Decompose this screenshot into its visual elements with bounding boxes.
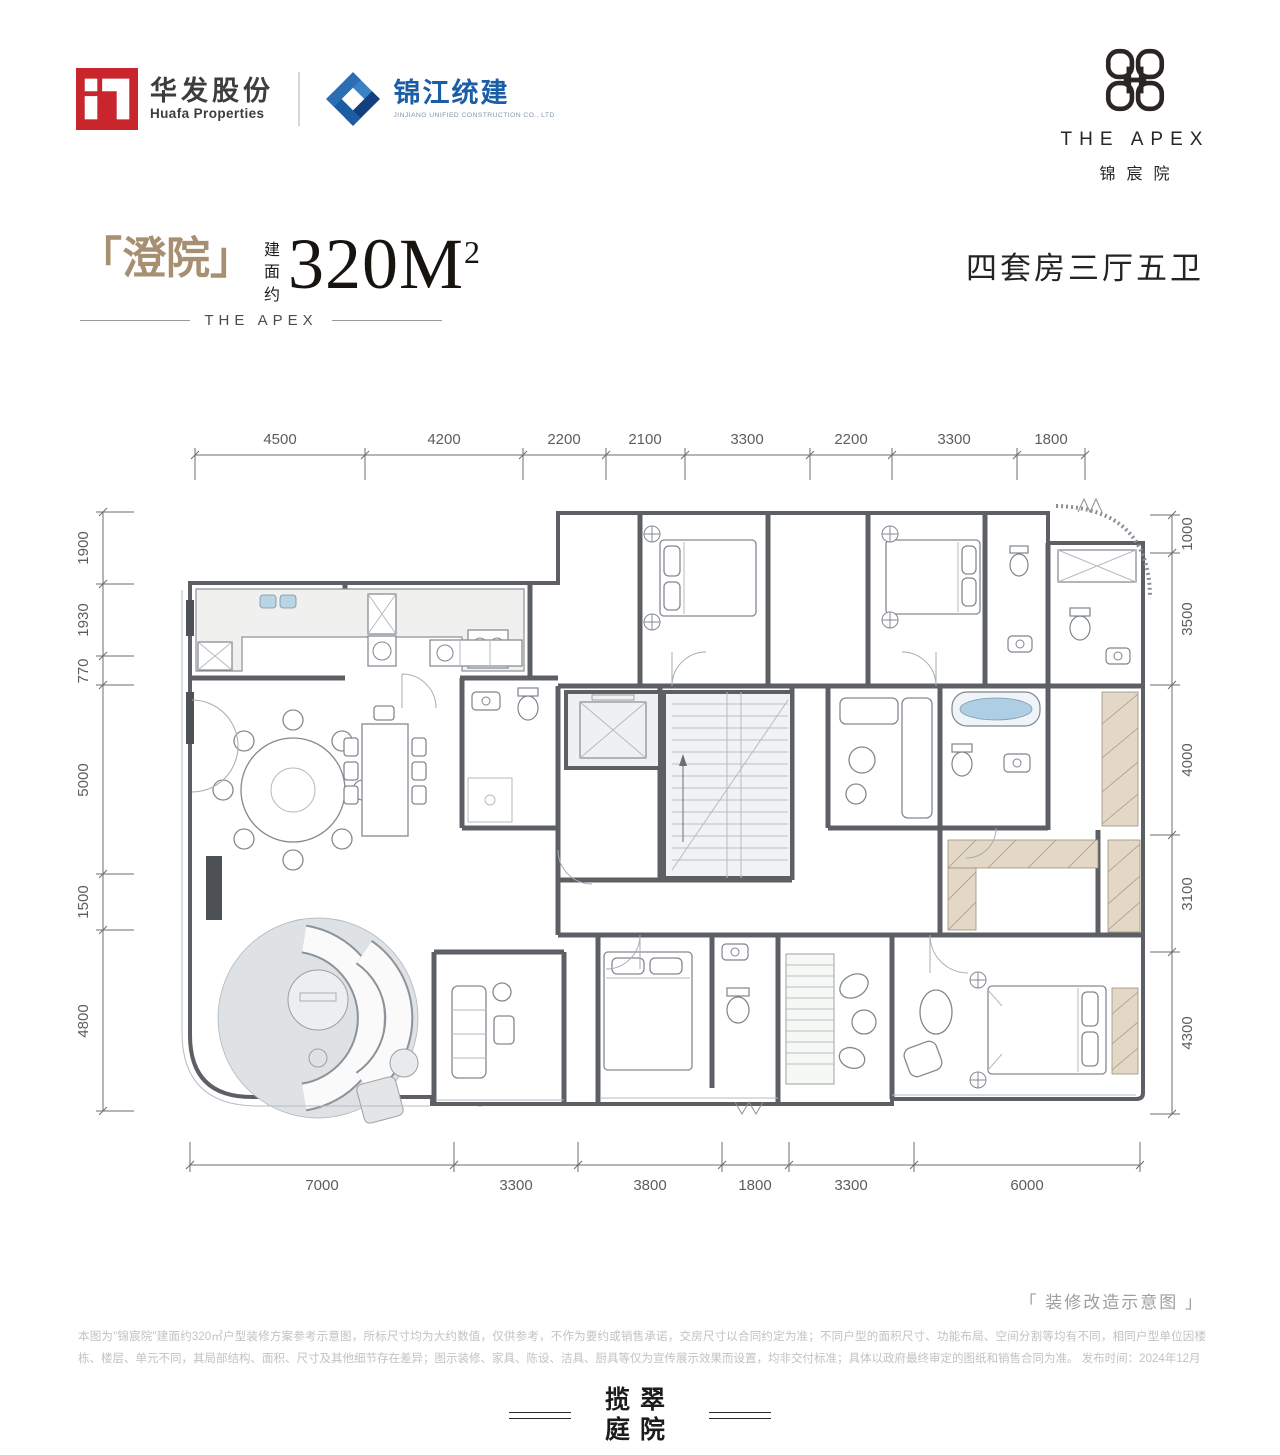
floor-plan: 4500 4200 2200 2100 3300 2200 3300 1800 … — [0, 0, 1280, 1455]
svg-text:4300: 4300 — [1179, 1016, 1196, 1049]
svg-text:3300: 3300 — [834, 1177, 867, 1194]
svg-text:3100: 3100 — [1179, 877, 1196, 910]
svg-text:3500: 3500 — [1179, 602, 1196, 635]
footer-logo-line2: 庭院 — [605, 1416, 675, 1446]
kitchen-sink-icon — [260, 595, 276, 608]
dimension-bottom: 7000 3300 3800 1800 3300 6000 — [186, 1142, 1144, 1194]
svg-text:2200: 2200 — [547, 431, 580, 448]
footer-logo-line1: 揽翠 — [605, 1386, 675, 1416]
footer-divider-line — [709, 1412, 771, 1419]
footer-divider-line — [509, 1412, 571, 1419]
svg-text:1000: 1000 — [1179, 517, 1196, 550]
svg-text:6000: 6000 — [1010, 1177, 1043, 1194]
toilet-icon — [727, 997, 749, 1023]
footer-logo-text: 揽翠 庭院 — [605, 1386, 675, 1445]
svg-text:7000: 7000 — [305, 1177, 338, 1194]
svg-text:4800: 4800 — [75, 1004, 92, 1037]
floorplan-poster: 华发股份 Huafa Properties 锦江统建 JINJIANG UNIF… — [0, 0, 1280, 1455]
long-table — [362, 724, 408, 836]
svg-text:5000: 5000 — [75, 763, 92, 796]
round-coffee-table — [288, 970, 348, 1030]
svg-text:1500: 1500 — [75, 885, 92, 918]
svg-text:2100: 2100 — [628, 431, 661, 448]
disclaimer-text: 本图为"锦宸院"建面约320㎡户型装修方案参考示意图，所标尺寸均为大约数值，仅供… — [78, 1326, 1206, 1371]
svg-text:3800: 3800 — [633, 1177, 666, 1194]
sofa — [902, 698, 932, 818]
svg-text:4500: 4500 — [263, 431, 296, 448]
garden-stairs — [786, 954, 834, 1084]
washer-icon — [368, 636, 396, 666]
daybed — [452, 986, 486, 1078]
svg-text:3300: 3300 — [937, 431, 970, 448]
svg-text:1930: 1930 — [75, 603, 92, 636]
toilet-icon — [518, 696, 538, 720]
svg-text:3300: 3300 — [730, 431, 763, 448]
toilet-icon — [952, 752, 972, 776]
svg-text:770: 770 — [75, 658, 92, 683]
svg-text:1800: 1800 — [738, 1177, 771, 1194]
pouf — [920, 990, 952, 1034]
dimension-left: 1900 1930 770 5000 1500 4800 — [75, 508, 134, 1115]
sink-icon — [1004, 754, 1030, 772]
footer-project-logo: 揽翠 庭院 — [0, 1386, 1280, 1445]
sink-icon — [472, 692, 500, 710]
svg-text:2200: 2200 — [834, 431, 867, 448]
svg-text:1800: 1800 — [1034, 431, 1067, 448]
round-dining-table — [241, 738, 345, 842]
svg-text:4200: 4200 — [427, 431, 460, 448]
plan-caption: 「 装修改造示意图 」 — [1020, 1288, 1204, 1313]
dimension-top: 4500 4200 2200 2100 3300 2200 3300 1800 — [191, 431, 1089, 480]
svg-text:3300: 3300 — [499, 1177, 532, 1194]
dimension-right: 1000 3500 4000 3100 4300 — [1150, 511, 1196, 1118]
svg-text:1900: 1900 — [75, 531, 92, 564]
svg-text:4000: 4000 — [1179, 743, 1196, 776]
